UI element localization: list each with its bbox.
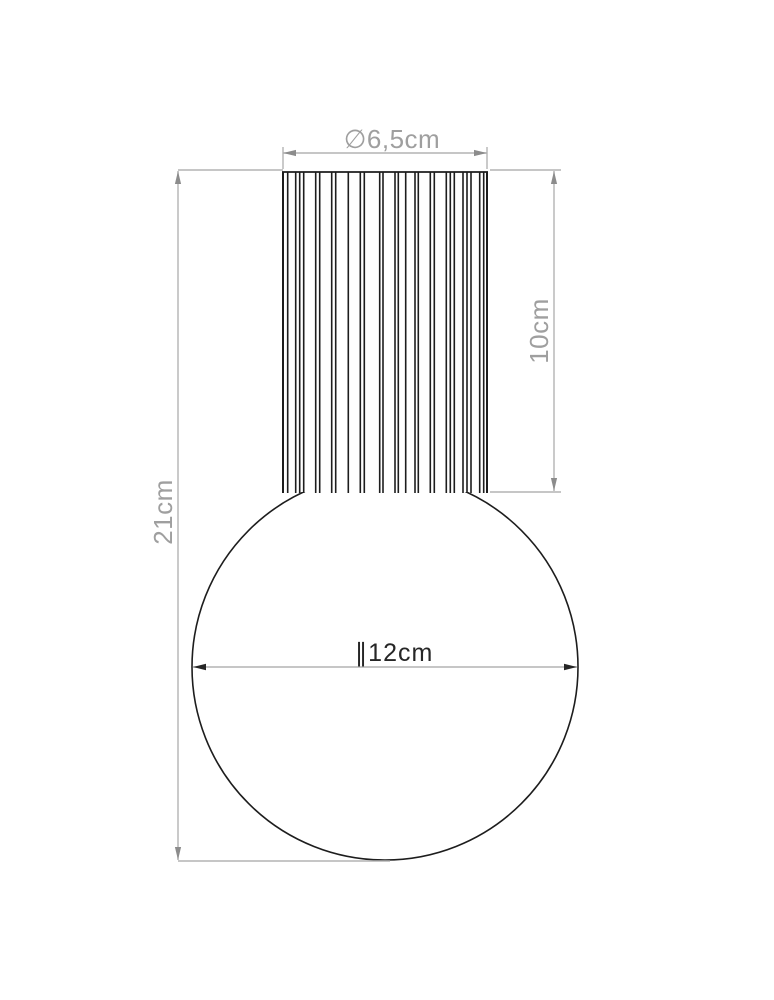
dim-label-total-height: 21cm — [148, 479, 178, 545]
arrowhead-right — [564, 664, 577, 670]
arrowhead-left — [283, 150, 296, 156]
dim-cap-height: 10cm — [490, 170, 561, 492]
dim-label-cap-diameter: ∅6,5cm — [344, 124, 440, 154]
dim-globe-diameter: ∥12cm — [193, 639, 577, 670]
dim-cap-diameter: ∅6,5cm — [283, 124, 487, 169]
arrowhead-left — [193, 664, 206, 670]
arrowhead-bottom — [551, 478, 557, 491]
arrowhead-bottom — [175, 847, 181, 860]
arrowhead-top — [175, 171, 181, 184]
arrowhead-top — [551, 171, 557, 184]
technical-drawing: ∅6,5cm 10cm 21cm ∥12cm — [0, 0, 774, 1000]
drawing-canvas: ∅6,5cm 10cm 21cm ∥12cm — [0, 0, 774, 1000]
cap-mask — [284, 171, 487, 492]
dim-label-globe-diameter: ∥12cm — [355, 639, 434, 667]
arrowhead-right — [474, 150, 487, 156]
dim-label-cap-height: 10cm — [524, 298, 554, 364]
